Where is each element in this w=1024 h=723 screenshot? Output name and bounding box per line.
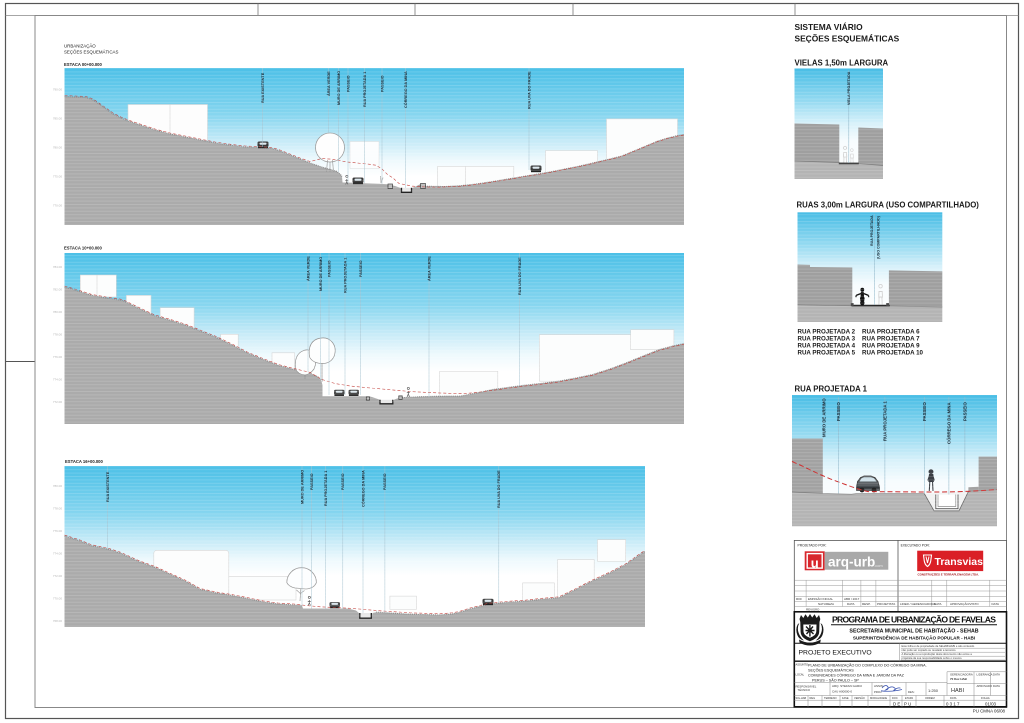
svg-text:TERRENO: TERRENO: [824, 696, 837, 700]
svg-text:790.00: 790.00: [53, 88, 63, 92]
svg-text:772.00: 772.00: [53, 574, 63, 578]
svg-text:SEÇÕES ESQUEMÁTICAS: SEÇÕES ESQUEMÁTICAS: [795, 33, 900, 44]
svg-text:LIDER / GERENCIADORA: LIDER / GERENCIADORA: [900, 602, 936, 606]
svg-text:780.00: 780.00: [53, 310, 63, 314]
svg-text:CAU A00000-0: CAU A00000-0: [832, 690, 852, 694]
svg-text:01/03: 01/03: [985, 702, 997, 707]
svg-text:RUA PROJETADA 3: RUA PROJETADA 3: [798, 336, 856, 343]
svg-text:ORDEM: ORDEM: [925, 696, 935, 700]
svg-text:projetista da sua responsab: projetista da sua responsabilidade sobre…: [902, 656, 963, 660]
svg-text:NATUREZA: NATUREZA: [818, 602, 834, 606]
svg-text:RUA PROJETADA 1: RUA PROJETADA 1: [795, 385, 868, 394]
svg-text:REG: REG: [810, 696, 816, 700]
svg-text:778.00: 778.00: [53, 333, 63, 337]
svg-text:ESTACA 10+00.000: ESTACA 10+00.000: [64, 246, 102, 251]
svg-text:Este folha é de propriedade da: Este folha é de propriedade da SEHAB/HAB…: [902, 644, 975, 648]
svg-text:COMUNIDADES CÓRREGO DA MINA: COMUNIDADES CÓRREGO DA MINA E JARDIM DA …: [808, 673, 905, 678]
svg-text:TÉCNICO: TÉCNICO: [798, 687, 811, 692]
svg-text:RUA PROJETADA 5: RUA PROJETADA 5: [798, 350, 856, 357]
svg-text:u: u: [811, 556, 819, 571]
svg-text:RUA PROJETADA 7: RUA PROJETADA 7: [862, 336, 920, 343]
svg-text:D E: D E: [893, 702, 900, 707]
svg-text:775.00: 775.00: [53, 175, 63, 179]
svg-text:não pode ser copiado ou r: não pode ser copiado ou revelado a terce…: [902, 648, 957, 652]
svg-text:GERENCIADORA: GERENCIADORA: [950, 673, 973, 677]
svg-text:VIELAS 1,50m LARGURA: VIELAS 1,50m LARGURA: [795, 59, 889, 68]
svg-text:ARQ. STEFAN GARCI: ARQ. STEFAN GARCI: [832, 684, 862, 688]
svg-text:P U: P U: [904, 702, 911, 707]
svg-text:SEÇÕES ESQUEMÁTICAS: SEÇÕES ESQUEMÁTICAS: [808, 668, 854, 673]
svg-text:PERUS – SÃO PAULO – SP: PERUS – SÃO PAULO – SP: [812, 678, 859, 683]
svg-text:772.00: 772.00: [53, 400, 63, 404]
svg-text:PROJETISTA: PROJETISTA: [877, 602, 895, 606]
svg-text:SECRETARIA MUNICIPAL DE HABITA: SECRETARIA MUNICIPAL DE HABITAÇÃO - SEHA…: [849, 628, 978, 635]
svg-text:ETAPA: ETAPA: [905, 696, 913, 700]
svg-text:776.00: 776.00: [53, 529, 63, 533]
svg-text:70 Dez HAB: 70 Dez HAB: [950, 677, 968, 681]
svg-text:PROGRAMA DE URBANIZAÇÃO DE FAV: PROGRAMA DE URBANIZAÇÃO DE FAVELAS: [832, 615, 996, 625]
svg-text:DOC: DOC: [892, 696, 898, 700]
svg-text:0 3 1 7: 0 3 1 7: [946, 702, 960, 707]
svg-text:DATA: DATA: [934, 602, 942, 606]
svg-text:RUAS 3,00m LARGURA (USO COMPAR: RUAS 3,00m LARGURA (USO COMPARTILHADO): [797, 201, 980, 210]
svg-text:768.00: 768.00: [53, 619, 63, 623]
svg-text:SEÇÕES ESQUEMÁTICAS: SEÇÕES ESQUEMÁTICAS: [64, 50, 118, 55]
svg-text:DATA: DATA: [847, 602, 855, 606]
svg-text:APROVADO: APROVADO: [977, 684, 993, 688]
svg-text:DATA: DATA: [993, 684, 1000, 688]
svg-text:PROJETO EXECUTIVO: PROJETO EXECUTIVO: [799, 650, 872, 657]
svg-text:778.00: 778.00: [53, 507, 63, 511]
svg-text:RUA PROJETADA 4: RUA PROJETADA 4: [798, 343, 856, 350]
svg-text:782.00: 782.00: [53, 288, 63, 292]
svg-text:RESP.: RESP.: [862, 602, 871, 606]
svg-text:785.00: 785.00: [53, 117, 63, 121]
svg-text:ABR / 2017: ABR / 2017: [844, 597, 860, 601]
svg-text:.com: .com: [874, 563, 883, 568]
svg-text:DATA: DATA: [993, 673, 1000, 677]
svg-text:LIDERANÇA: LIDERANÇA: [977, 673, 993, 677]
svg-text:PLANO DE URBANIZAÇÃO DO CO: PLANO DE URBANIZAÇÃO DO COMPLEXO DO CÓRR…: [808, 663, 927, 668]
svg-text:URBANIZAÇÃO: URBANIZAÇÃO: [64, 44, 96, 49]
svg-text:774.00: 774.00: [53, 552, 63, 556]
svg-text:780.00: 780.00: [53, 146, 63, 150]
svg-text:784.00: 784.00: [53, 265, 63, 269]
svg-text:DES:: DES:: [908, 690, 915, 694]
svg-text:MODALIDADE: MODALIDADE: [870, 696, 887, 700]
svg-text:RUA PROJETADA 9: RUA PROJETADA 9: [862, 343, 920, 350]
svg-text:EXECUTADO POR:: EXECUTADO POR:: [901, 544, 930, 548]
svg-text:R00: R00: [796, 597, 802, 601]
svg-text:CONSTRUÇÕES E TERRAPLENAGEM LT: CONSTRUÇÕES E TERRAPLENAGEM LTDA.: [918, 572, 980, 577]
svg-text:Transvias: Transvias: [935, 556, 984, 568]
svg-text:EMISSÃO INICIAL: EMISSÃO INICIAL: [808, 596, 833, 601]
svg-text:APROVAÇÃO/VISTO: APROVAÇÃO/VISTO: [950, 601, 979, 606]
svg-text:A liberação ou a reprodução: A liberação ou a reprodução deste docume…: [902, 652, 973, 656]
svg-text:PROJETADO POR:: PROJETADO POR:: [798, 544, 827, 548]
svg-text:SUPERINTENDÊNCIA DE HABITAÇÃO: SUPERINTENDÊNCIA DE HABITAÇÃO POPULAR - …: [853, 633, 975, 640]
svg-text:ASSUNTO: ASSUNTO: [796, 663, 809, 667]
svg-text:SISTEMA VIÁRIO: SISTEMA VIÁRIO: [795, 21, 864, 32]
svg-text:770.00: 770.00: [53, 204, 63, 208]
svg-text:780.00: 780.00: [53, 484, 63, 488]
svg-text:FASE: FASE: [842, 696, 849, 700]
svg-text:ESTACA 16+00.000: ESTACA 16+00.000: [65, 459, 103, 464]
svg-text:SIG-HAB: SIG-HAB: [796, 696, 807, 700]
svg-text:RUA PROJETADA 10: RUA PROJETADA 10: [862, 350, 924, 357]
svg-text:HABI: HABI: [951, 688, 965, 694]
svg-text:REVISÃO: REVISÃO: [806, 607, 820, 612]
svg-text:1:250: 1:250: [928, 688, 939, 693]
svg-text:PU CMNA 06/08: PU CMNA 06/08: [973, 709, 1006, 714]
svg-text:LOCAL: LOCAL: [796, 673, 805, 677]
svg-text:774.00: 774.00: [53, 378, 63, 382]
svg-text:DATA: DATA: [992, 602, 1000, 606]
svg-text:RUA PROJETADA 6: RUA PROJETADA 6: [862, 329, 920, 336]
svg-text:DATA: DATA: [950, 696, 957, 700]
svg-text:776.00: 776.00: [53, 355, 63, 359]
svg-text:RUA PROJETADA 2: RUA PROJETADA 2: [798, 329, 856, 336]
svg-text:arq-urb: arq-urb: [828, 555, 875, 570]
svg-text:FOLHA: FOLHA: [981, 696, 990, 700]
svg-text:770.00: 770.00: [53, 597, 63, 601]
svg-text:ESTACA 00+00.000: ESTACA 00+00.000: [64, 62, 102, 67]
